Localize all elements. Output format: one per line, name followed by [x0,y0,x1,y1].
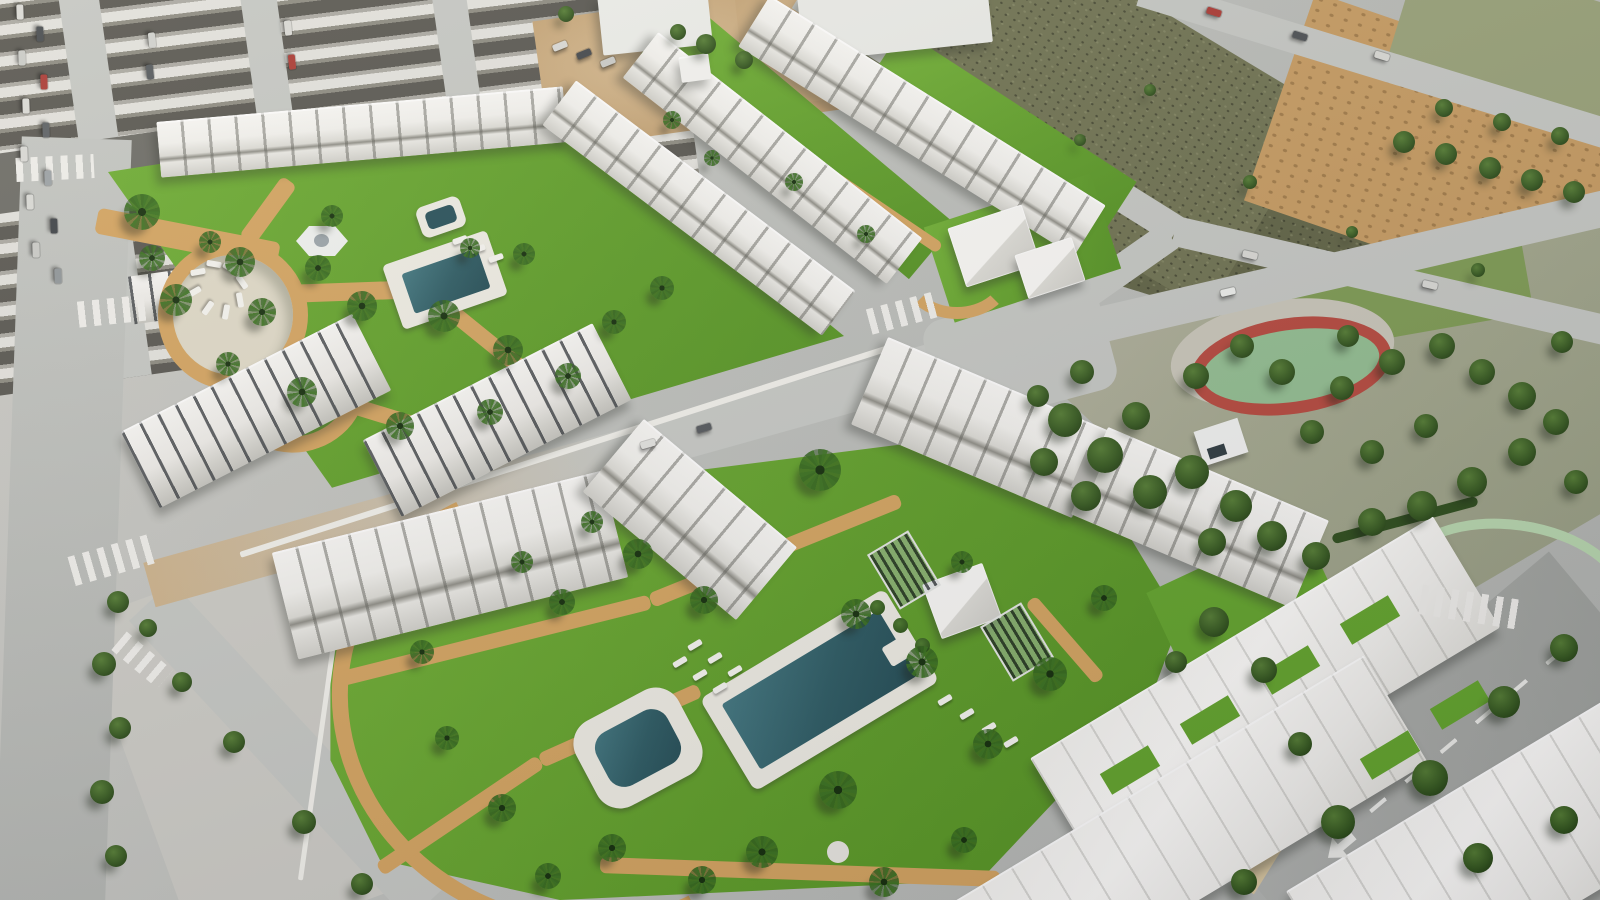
tree [1337,325,1359,347]
tree [1175,455,1209,489]
tree [1144,84,1156,96]
pool-planter [893,618,908,633]
tree [1521,169,1543,191]
tree [1087,437,1123,473]
pool-planter [870,600,885,615]
tree [1493,113,1511,131]
aerial-render-canvas [0,0,1600,900]
parked-car [32,242,40,257]
parked-car [288,54,297,70]
tree [1360,440,1384,464]
tree [1435,99,1453,117]
tree [1133,475,1167,509]
palm-tree [623,539,653,569]
tree [92,652,116,676]
tree [1488,686,1520,718]
palm-tree [410,640,434,664]
water-feature-center [314,234,329,247]
parked-car [146,64,155,80]
tree [1412,760,1448,796]
tree [1471,263,1485,277]
tree [1550,634,1578,662]
palm-tree [799,449,841,491]
palm-tree [488,794,516,822]
parked-car [50,218,58,233]
tree [1508,438,1536,466]
palm-tree [493,335,523,365]
tree [1379,349,1405,375]
tree [1463,843,1493,873]
tree [1070,360,1094,384]
palm-tree [841,599,871,629]
palm-tree [1091,585,1117,611]
tree [1551,331,1573,353]
tree [1251,657,1277,683]
tree [1183,363,1209,389]
tree [1230,334,1254,358]
tree [1257,521,1287,551]
tree [1220,490,1252,522]
tree [1457,467,1487,497]
palm-tree [460,238,480,258]
palm-tree [663,111,681,129]
tree [1358,508,1386,536]
tree [90,780,114,804]
parked-car [16,4,24,19]
palm-tree [819,771,857,809]
palm-tree [650,276,674,300]
palm-tree [386,412,414,440]
tree [1469,359,1495,385]
palm-tree [951,827,977,853]
tree [1479,157,1501,179]
palm-tree [160,284,192,316]
palm-tree [287,377,317,407]
palm-tree [704,150,720,166]
palm-tree [1033,657,1067,691]
tree [1563,181,1585,203]
tree [1321,805,1355,839]
palm-tree [598,834,626,862]
tree [1393,131,1415,153]
palm-tree [477,399,503,425]
palm-tree [216,352,240,376]
palm-tree [321,205,343,227]
palm-tree [199,231,221,253]
palm-tree [347,291,377,321]
tree [351,873,373,895]
tree [1074,134,1086,146]
palm-tree [435,726,459,750]
tree [1302,542,1330,570]
tree [1300,420,1324,444]
parked-car [148,32,157,48]
tree [1407,491,1437,521]
tree [1288,732,1312,756]
palm-tree [906,646,938,678]
palm-tree [746,836,778,868]
parked-car [284,20,293,36]
palm-tree [581,511,603,533]
palm-tree [785,173,803,191]
parked-car [36,26,44,41]
parked-car [18,50,26,65]
parked-car [22,98,30,113]
tree [1165,651,1187,673]
tree [1435,143,1457,165]
palm-tree [555,363,581,389]
palm-tree [139,245,165,271]
tree [1198,528,1226,556]
tree [109,717,131,739]
palm-tree [549,589,575,615]
tree [1231,869,1257,895]
tree [1030,448,1058,476]
tree [1330,376,1354,400]
tree [1346,226,1358,238]
tree [735,51,753,69]
tree [292,810,316,834]
palm-tree [602,310,626,334]
tree [1027,385,1049,407]
tree [172,672,192,692]
palm-tree [973,729,1003,759]
tree [1564,470,1588,494]
tree [139,619,157,637]
tree [1543,409,1569,435]
palm-tree [225,247,255,277]
palm-tree [951,551,973,573]
parked-car [40,74,48,89]
palm-tree [305,255,331,281]
tree [223,731,245,753]
palm-tree [535,863,561,889]
palm-tree [857,225,875,243]
tree [1199,607,1229,637]
palm-tree [248,298,276,326]
tree [1071,481,1101,511]
palm-tree [688,866,716,894]
parked-car [26,194,34,209]
parked-car [54,268,62,283]
tree [558,6,574,22]
tree [1429,333,1455,359]
palm-tree [124,194,160,230]
parked-car [42,122,50,137]
tree [1269,359,1295,385]
tree [1550,806,1578,834]
parked-car [20,146,28,161]
palm-tree [511,551,533,573]
palm-tree [513,243,535,265]
pool-shed [678,53,711,83]
palm-tree [690,586,718,614]
tree [107,591,129,613]
tree [1508,382,1536,410]
palm-tree [428,300,460,332]
palm-tree [869,867,899,897]
tree [105,845,127,867]
tree [1243,175,1257,189]
tree [1122,402,1150,430]
tree [1551,127,1569,145]
tree [1414,414,1438,438]
parked-car [44,170,52,185]
tree [670,24,686,40]
paver-circle [827,841,849,863]
tree [1048,403,1082,437]
tree [696,34,716,54]
